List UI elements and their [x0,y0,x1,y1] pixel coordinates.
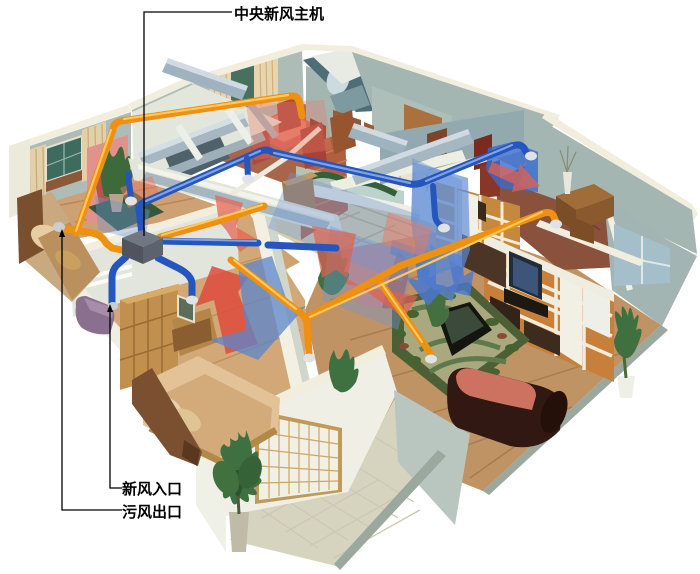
svg-text:污风出口: 污风出口 [122,503,182,521]
svg-text:新风入口: 新风入口 [122,480,182,498]
svg-text:中央新风主机: 中央新风主机 [234,5,324,23]
